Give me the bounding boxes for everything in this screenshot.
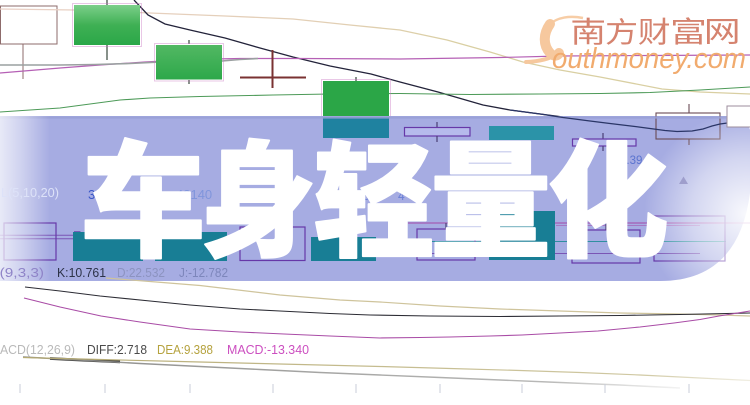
svg-text:J(9,3,3): J(9,3,3)	[0, 265, 44, 280]
svg-text:J:-12.782: J:-12.782	[179, 265, 228, 280]
svg-text:DIFF:2.718: DIFF:2.718	[87, 342, 147, 357]
svg-text:MACD:-13.340: MACD:-13.340	[227, 342, 309, 357]
svg-text:L(5,10,20): L(5,10,20)	[1, 185, 59, 200]
svg-text:DEA:9.388: DEA:9.388	[157, 342, 213, 357]
svg-text:ACD(12,26,9): ACD(12,26,9)	[0, 342, 75, 357]
svg-text:K:10.761: K:10.761	[57, 265, 106, 280]
svg-text:D:22.532: D:22.532	[117, 265, 165, 280]
svg-text:outhmoney.com: outhmoney.com	[552, 43, 746, 75]
